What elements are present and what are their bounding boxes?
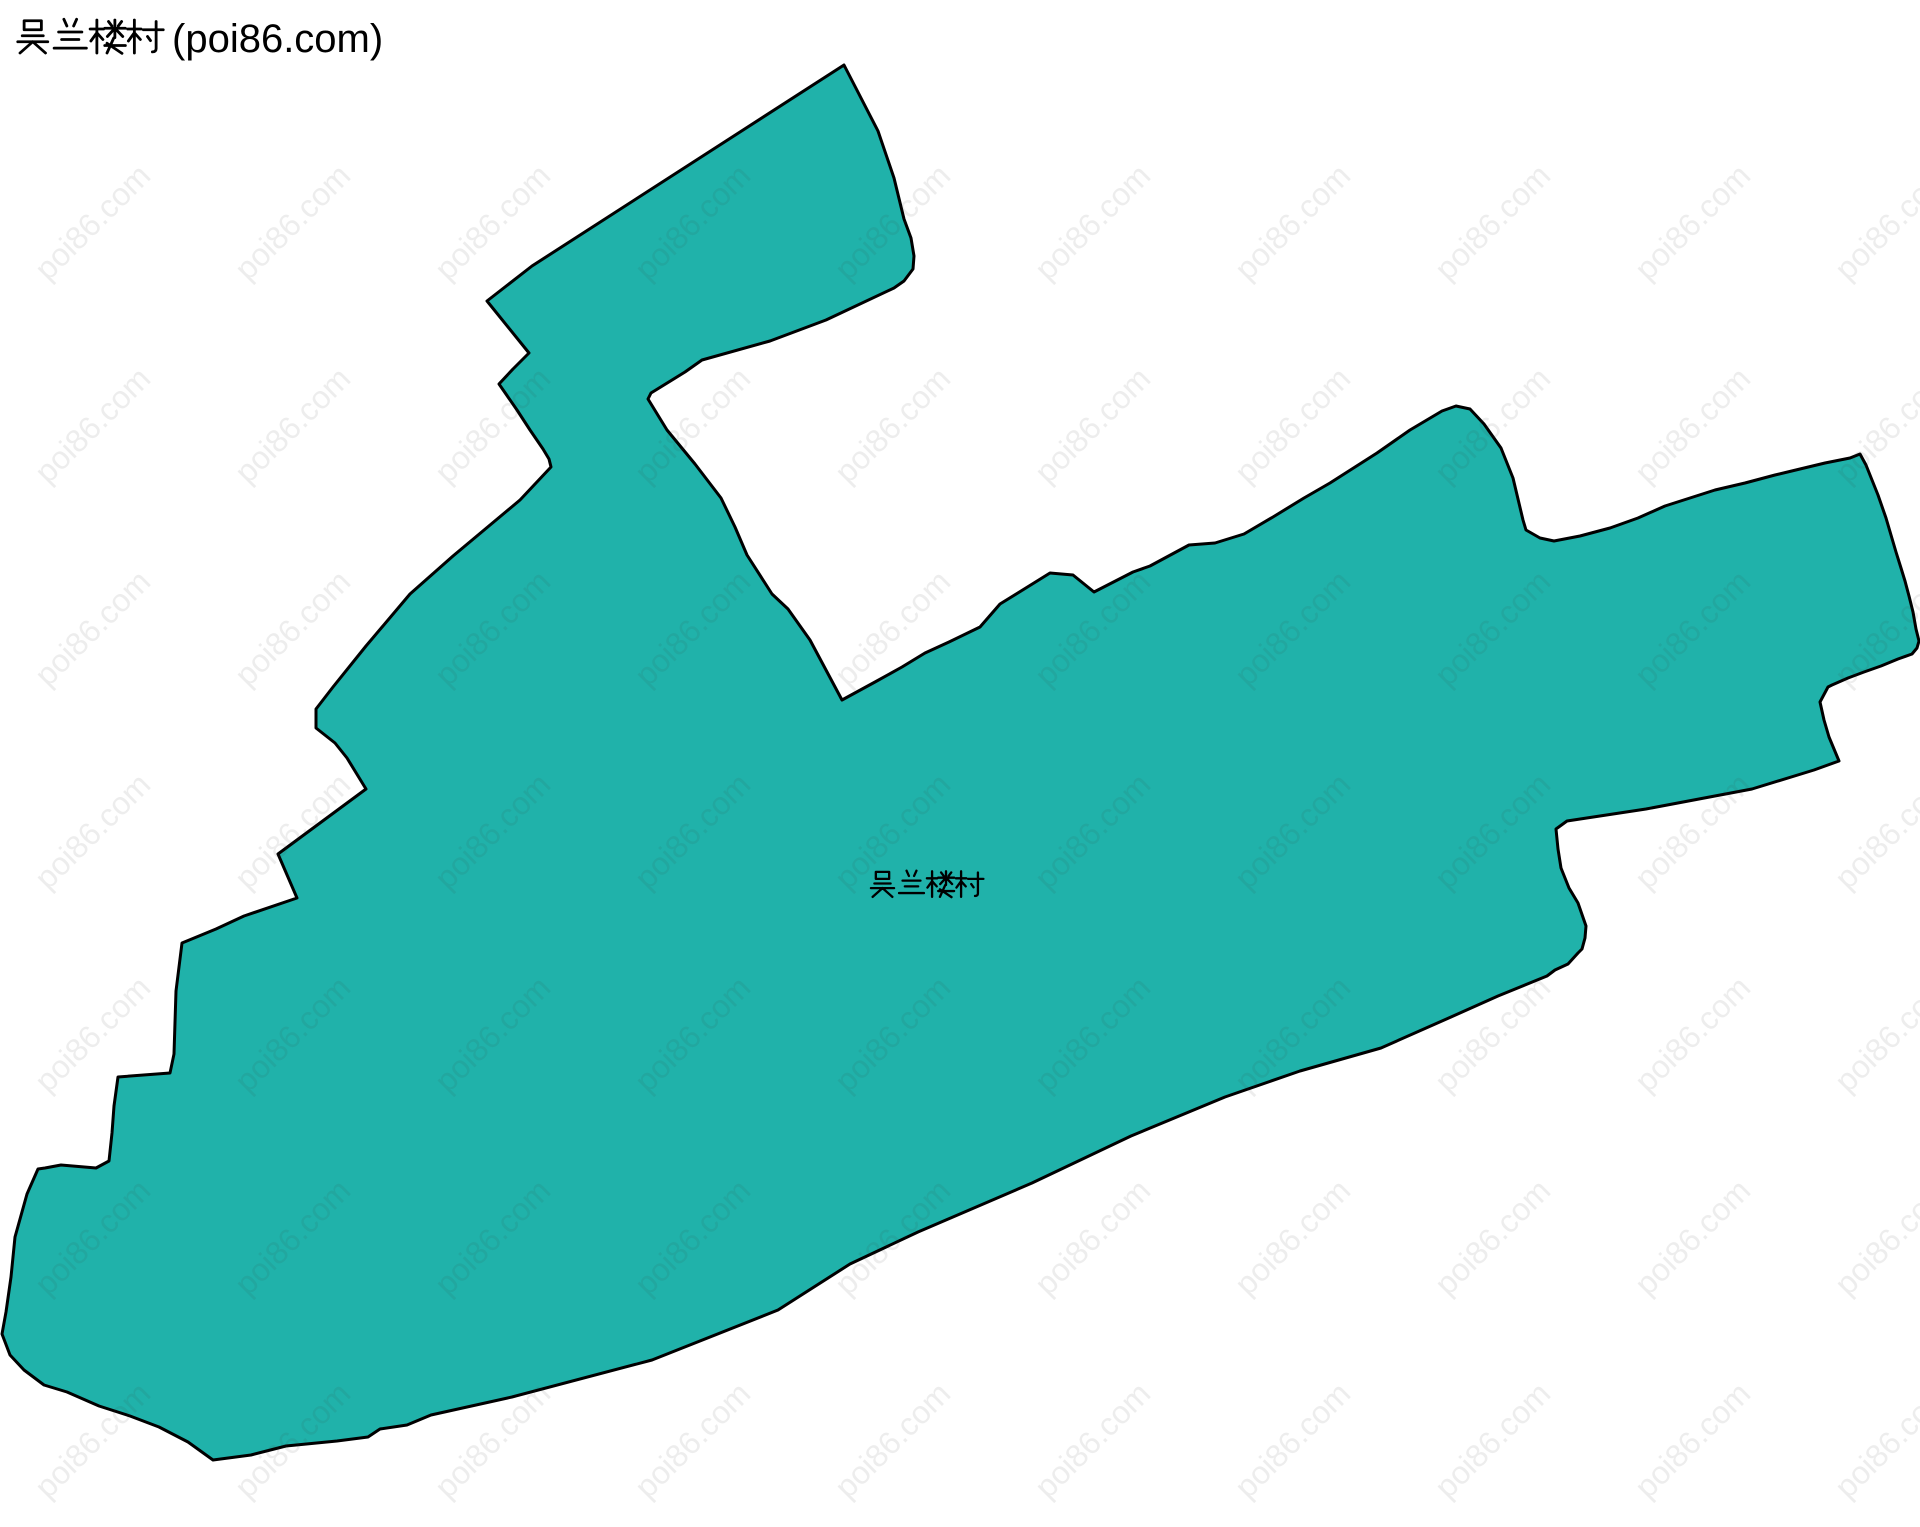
svg-text:(poi86.com): (poi86.com) xyxy=(172,17,383,61)
